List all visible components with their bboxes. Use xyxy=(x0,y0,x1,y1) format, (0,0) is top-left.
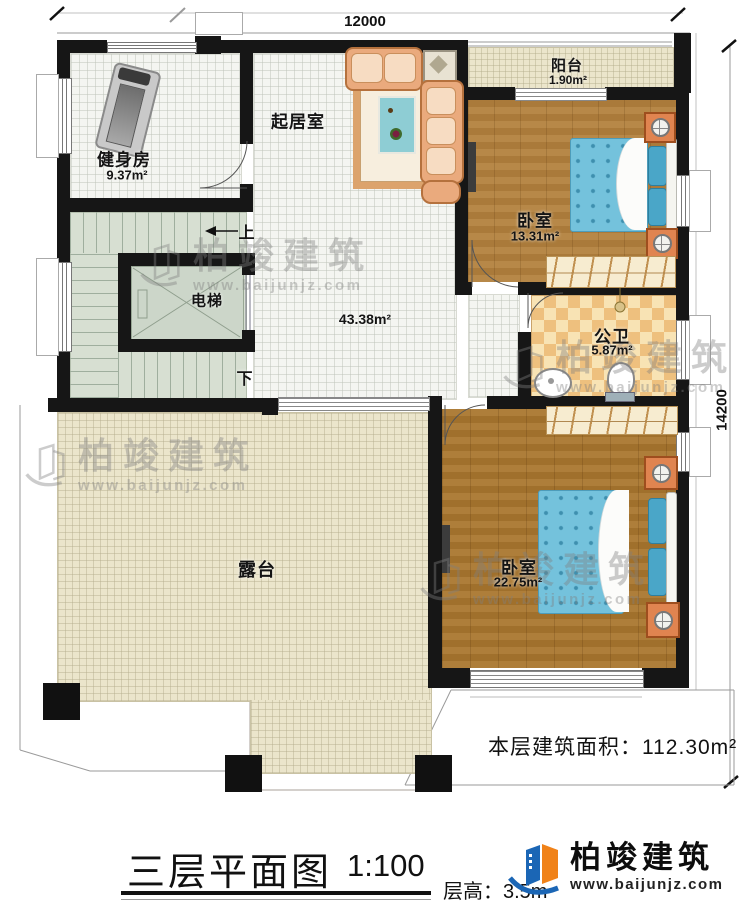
bedroom2-area: 22.75m² xyxy=(494,575,542,590)
lamp-icon xyxy=(653,234,672,253)
elevator-shaft-wall xyxy=(118,253,255,266)
stair-flight-bottom xyxy=(118,352,245,398)
terrace-label: 露台 xyxy=(238,556,276,582)
flower-decor xyxy=(390,128,402,140)
lamp-icon xyxy=(651,118,670,137)
nightstand xyxy=(644,112,676,143)
elevator-shaft-wall xyxy=(118,339,255,352)
window xyxy=(57,262,72,352)
plan-title: 三层平面图 xyxy=(127,841,332,896)
sofa-cushion xyxy=(426,117,456,145)
treadmill-belt xyxy=(106,83,146,148)
wall-segment xyxy=(462,87,515,100)
stair-flight-left xyxy=(70,253,118,398)
stairs-down-label: 下 xyxy=(236,365,253,389)
column xyxy=(415,755,452,792)
sink-drain xyxy=(548,378,554,384)
window-sill xyxy=(36,74,59,158)
sofa-cushion xyxy=(384,53,416,83)
wall-segment xyxy=(642,668,689,688)
toilet-tank xyxy=(605,392,635,402)
elevator-label: 电梯 xyxy=(191,290,223,311)
sliding-window xyxy=(470,670,644,688)
brand-logo-icon xyxy=(504,836,564,898)
window-sill xyxy=(195,12,243,35)
floor-plan-canvas: 柏竣建筑 www.baijunjz.com 柏竣建筑 www.baijunjz.… xyxy=(0,0,750,912)
toilet xyxy=(604,362,634,400)
tv-bedroom2 xyxy=(442,525,450,573)
elevator-shaft-wall xyxy=(242,330,255,352)
stairs-up-label: 上 xyxy=(238,219,255,243)
wall-segment xyxy=(195,36,221,54)
wall-segment xyxy=(57,40,70,78)
wall-segment xyxy=(48,398,278,412)
nightstand xyxy=(646,602,680,638)
window-sill xyxy=(689,427,711,477)
dimension-height: 14200 xyxy=(714,389,731,431)
bed2-sheet xyxy=(598,490,629,612)
elevator-cab xyxy=(131,266,244,341)
wardrobe xyxy=(546,406,678,435)
bed2-pillow xyxy=(648,548,667,596)
corner-table xyxy=(423,50,457,82)
bed2-pillow xyxy=(648,498,667,544)
brand-name: 柏竣建筑 xyxy=(570,841,723,875)
sofa-cushion xyxy=(426,147,456,175)
sofa-armrest xyxy=(421,180,461,204)
sink xyxy=(534,368,572,398)
brand-url: www.baijunjz.com xyxy=(570,876,723,893)
sofa-cushion xyxy=(426,87,456,115)
sliding-door-balcony xyxy=(515,88,607,101)
bedroom1-area: 13.31m² xyxy=(511,229,559,244)
wall-segment xyxy=(455,282,472,295)
wall-segment xyxy=(676,87,689,175)
elevator-shaft-wall xyxy=(118,253,131,352)
dimension-width: 12000 xyxy=(344,13,386,30)
coffee-table xyxy=(378,96,416,154)
tv-bedroom1 xyxy=(468,142,476,192)
sofa-cushion xyxy=(351,53,383,83)
wall-segment xyxy=(674,33,691,93)
decor-dot xyxy=(388,108,393,113)
window-sill xyxy=(689,315,711,385)
window-sill xyxy=(689,170,711,232)
table-lamp xyxy=(429,55,447,73)
toilet-bowl xyxy=(607,362,635,396)
title-underline-thin xyxy=(121,899,431,900)
wall-segment xyxy=(240,40,253,144)
wall-segment xyxy=(428,668,470,688)
bed1-headboard xyxy=(666,138,677,232)
bed1-pillow xyxy=(648,146,667,186)
wall-segment xyxy=(240,184,253,200)
wall-segment xyxy=(262,398,278,415)
wall-segment xyxy=(487,396,518,409)
elevator-shaft-wall xyxy=(242,253,255,275)
floor-area-note: 本层建筑面积：112.30m² xyxy=(488,731,737,761)
living-label: 起居室 xyxy=(271,108,325,133)
bathroom-area: 5.87m² xyxy=(591,343,632,358)
wardrobe xyxy=(546,256,676,288)
balcony-area: 1.90m² xyxy=(549,73,587,87)
wall-segment xyxy=(57,198,253,212)
wall-segment xyxy=(428,396,442,688)
nightstand xyxy=(646,228,678,259)
brand-logo: 柏竣建筑 www.baijunjz.com xyxy=(504,836,723,898)
title-underline xyxy=(121,891,431,895)
sofa-right xyxy=(420,80,464,184)
living-area: 43.38m² xyxy=(339,311,391,327)
sliding-door-terrace xyxy=(278,397,430,411)
column xyxy=(225,755,262,792)
wall-segment xyxy=(676,470,689,668)
plan-scale: 1:100 xyxy=(347,848,425,884)
lamp-icon xyxy=(654,611,673,630)
window xyxy=(107,42,197,53)
window-sill xyxy=(36,258,59,356)
column xyxy=(43,683,80,720)
terrace-extension-floor xyxy=(250,700,432,774)
bed1-pillow xyxy=(648,188,667,226)
nightstand xyxy=(644,456,678,490)
window xyxy=(57,78,72,154)
bed2-headboard xyxy=(666,492,677,612)
hallway-floor xyxy=(468,294,520,398)
lamp-icon xyxy=(652,464,671,483)
sofa-top xyxy=(345,47,423,91)
gym-area: 9.37m² xyxy=(106,168,147,183)
bed1-sheet xyxy=(616,138,647,230)
stair-flight-top xyxy=(70,212,245,253)
